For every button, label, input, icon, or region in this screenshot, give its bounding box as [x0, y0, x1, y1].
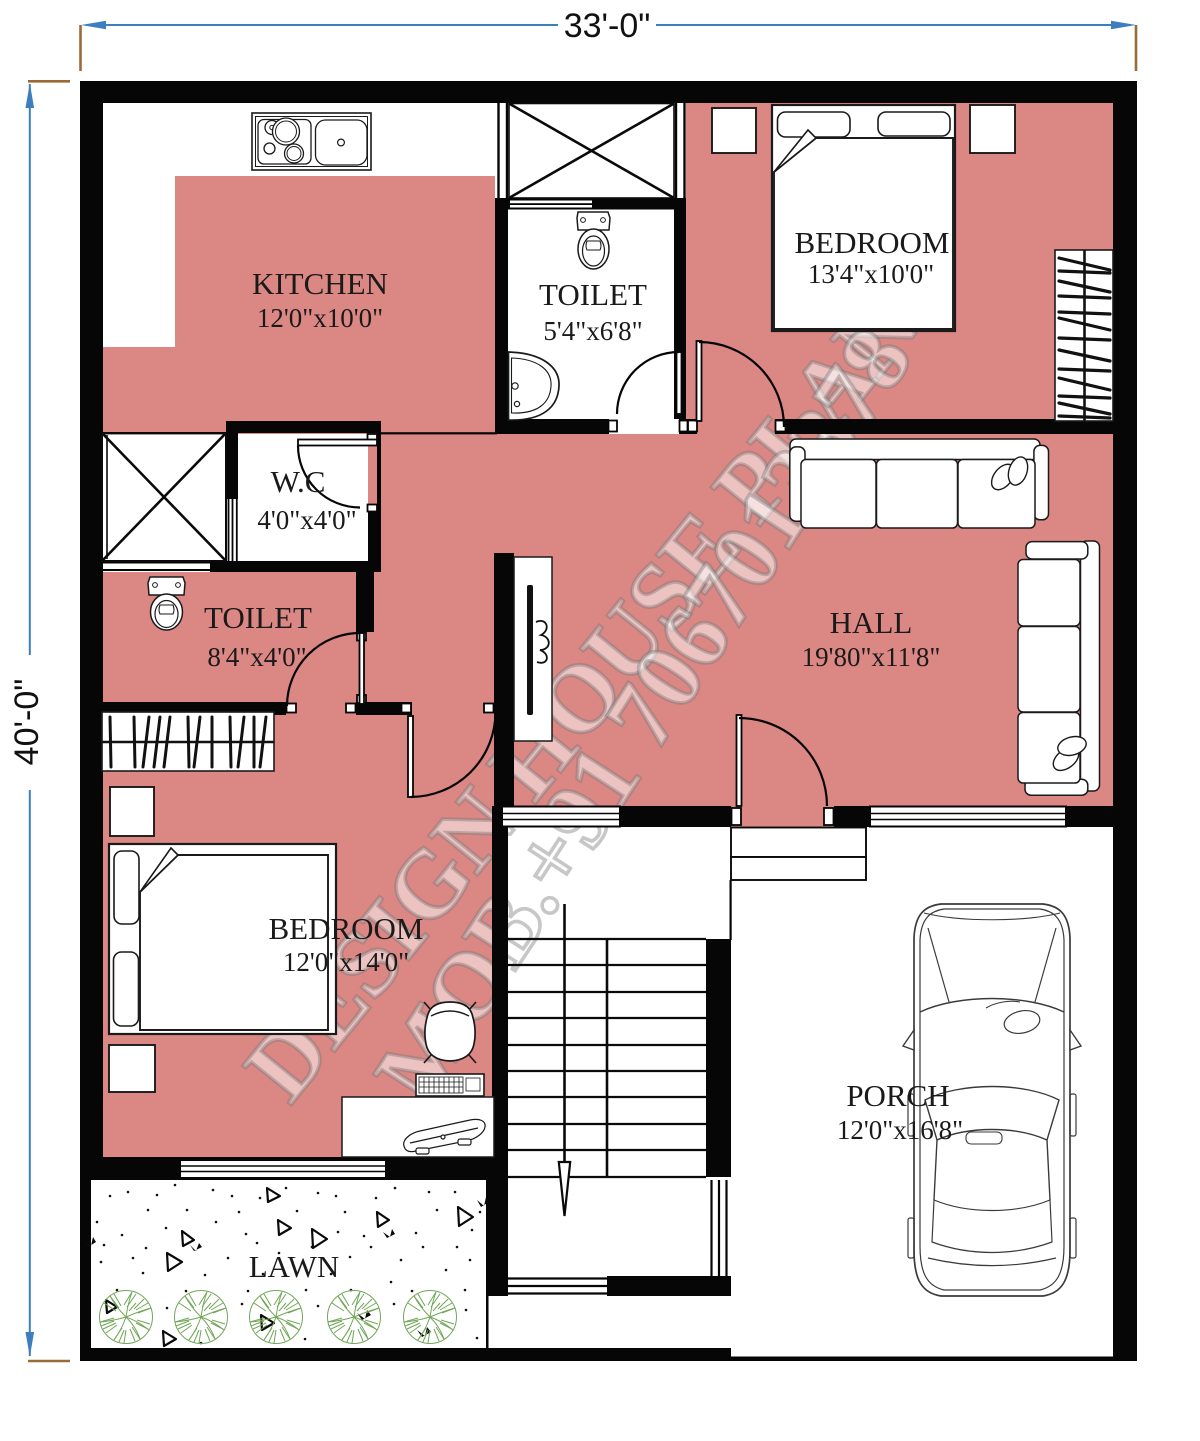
svg-text:TOILET: TOILET [204, 600, 312, 635]
svg-text:13'4"x10'0": 13'4"x10'0" [808, 259, 934, 289]
svg-text:33'-0": 33'-0" [564, 7, 651, 45]
svg-text:TOILET: TOILET [539, 277, 647, 312]
svg-text:W.C: W.C [271, 464, 326, 499]
svg-text:19'80"x11'8": 19'80"x11'8" [802, 642, 941, 672]
svg-text:12'0"x16'8": 12'0"x16'8" [837, 1115, 963, 1145]
svg-text:HALL: HALL [830, 605, 913, 640]
svg-text:40'-0": 40'-0" [8, 679, 46, 766]
svg-text:PORCH: PORCH [846, 1078, 949, 1113]
svg-text:5'4"x6'8": 5'4"x6'8" [543, 316, 642, 346]
svg-text:12'0"x10'0": 12'0"x10'0" [257, 303, 383, 333]
svg-text:12'0"x14'0": 12'0"x14'0" [283, 947, 409, 977]
svg-text:BEDROOM: BEDROOM [794, 225, 949, 260]
svg-text:8'4"x4'0": 8'4"x4'0" [207, 642, 306, 672]
svg-text:4'0"x4'0": 4'0"x4'0" [257, 505, 356, 535]
svg-text:KITCHEN: KITCHEN [252, 266, 388, 301]
svg-text:LAWN: LAWN [249, 1249, 340, 1284]
svg-text:BEDROOM: BEDROOM [268, 911, 423, 946]
